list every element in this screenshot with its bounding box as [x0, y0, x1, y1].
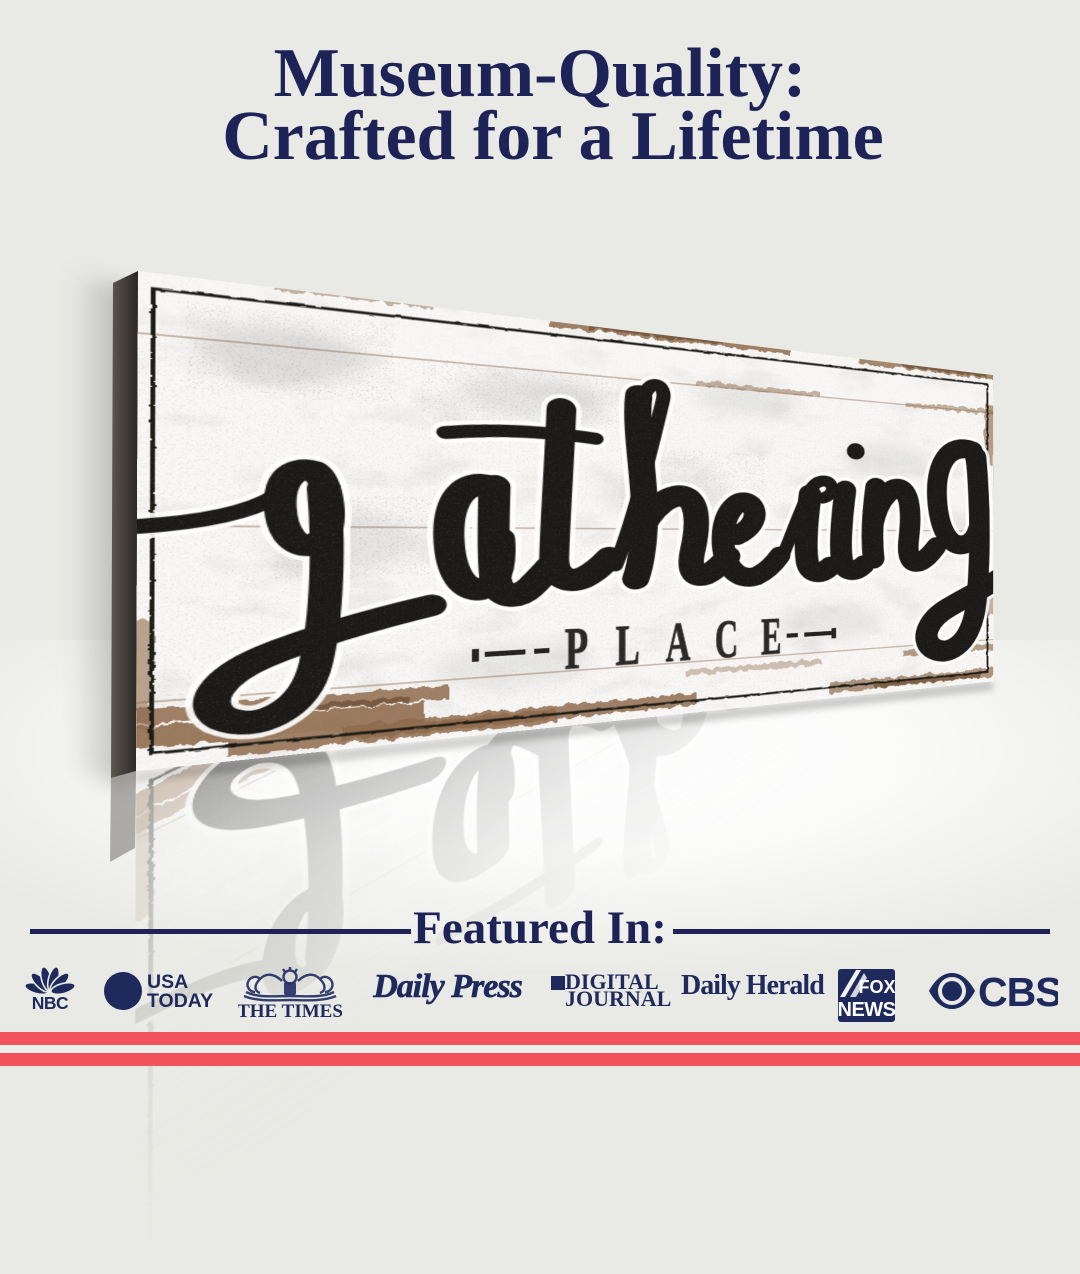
svg-text:FOX: FOX: [858, 977, 895, 997]
svg-text:NBC: NBC: [32, 993, 69, 1010]
svg-text:NEWS: NEWS: [838, 999, 895, 1021]
svg-text:TODAY: TODAY: [147, 990, 213, 1011]
svg-text:CBS: CBS: [978, 973, 1058, 1009]
svg-text:THE TIMES: THE TIMES: [238, 1001, 342, 1021]
